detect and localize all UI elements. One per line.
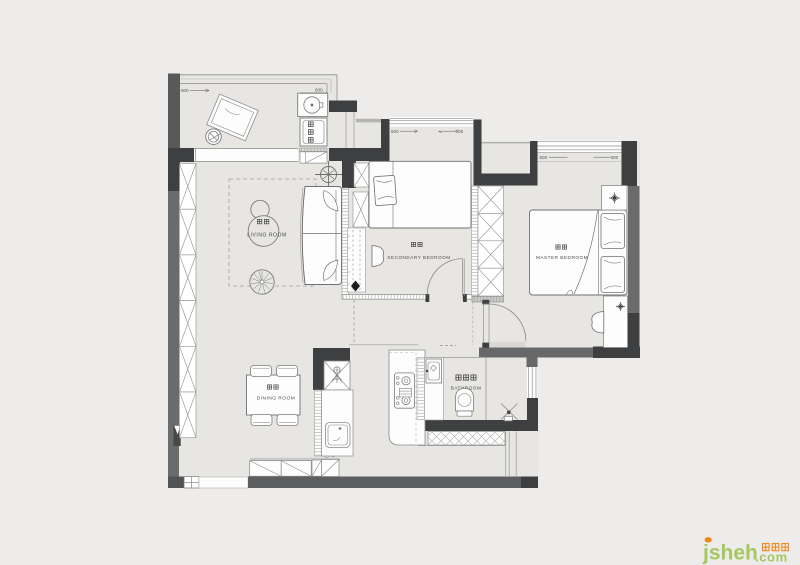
svg-text:LIVING ROOM: LIVING ROOM xyxy=(247,233,286,239)
svg-text:MASTER BEDROOM: MASTER BEDROOM xyxy=(536,255,588,260)
svg-text:600: 600 xyxy=(611,155,619,160)
svg-text:DINING ROOM: DINING ROOM xyxy=(257,396,296,402)
svg-text:jsheh: jsheh xyxy=(702,542,758,565)
svg-text:.com: .com xyxy=(755,550,788,565)
svg-text:SECONDARY BEDROOM: SECONDARY BEDROOM xyxy=(387,255,450,260)
svg-text:600: 600 xyxy=(540,155,548,160)
svg-text:600: 600 xyxy=(456,129,464,134)
svg-text:600: 600 xyxy=(391,129,399,134)
svg-text:600: 600 xyxy=(315,88,323,93)
svg-text:600: 600 xyxy=(181,88,189,93)
